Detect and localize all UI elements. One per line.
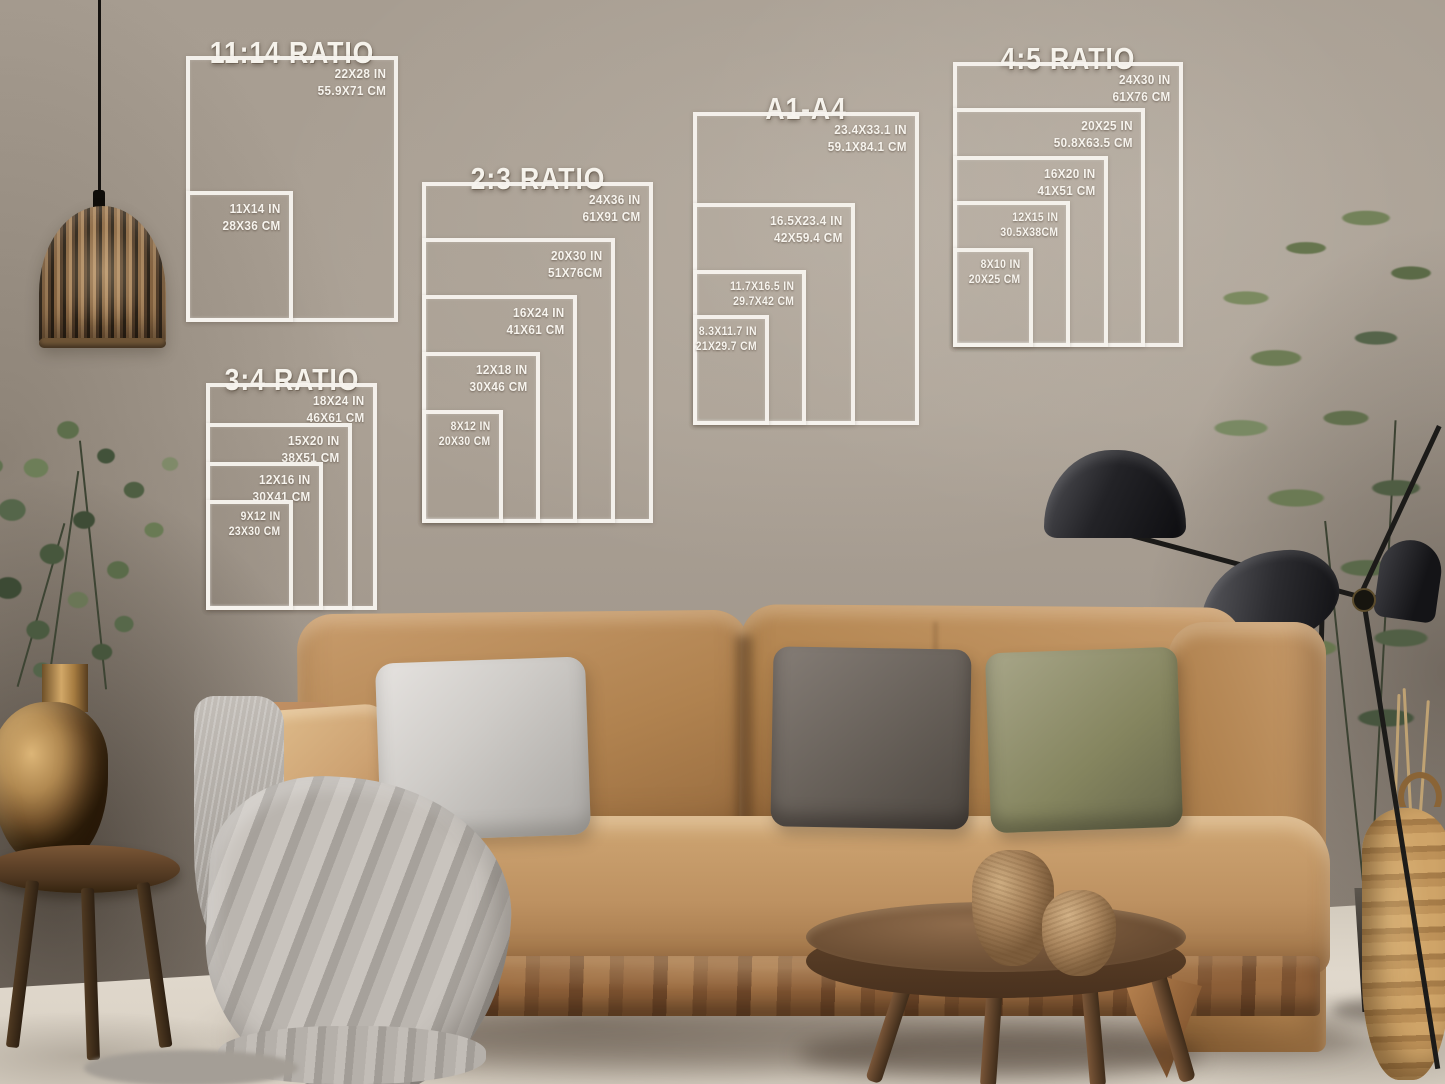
- size-inches: 22X28 IN: [317, 66, 386, 83]
- pillow-olive-green: [985, 647, 1183, 834]
- size-cm: 42X59.4 CM: [770, 230, 843, 247]
- size-inches: 16X24 IN: [507, 305, 565, 322]
- size-label: 23.4X33.1 IN 59.1X84.1 CM: [828, 122, 907, 155]
- size-inches: 8X10 IN: [969, 258, 1021, 273]
- size-inches: 20X25 IN: [1054, 118, 1133, 135]
- size-box: 8X12 IN 20X30 CM: [422, 410, 503, 523]
- size-cm: 41X51 CM: [1038, 183, 1096, 200]
- size-cm: 51X76CM: [548, 265, 603, 282]
- size-cm: 61X91 CM: [583, 209, 641, 226]
- size-label: 24X30 IN 61X76 CM: [1113, 72, 1171, 105]
- size-label: 8.3X11.7 IN 21X29.7 CM: [696, 325, 757, 354]
- pendant-lamp-cord: [98, 0, 101, 212]
- size-cm: 23X30 CM: [229, 525, 281, 540]
- size-inches: 12X16 IN: [253, 472, 311, 489]
- size-inches: 12X18 IN: [470, 362, 528, 379]
- size-label: 12X18 IN 30X46 CM: [470, 362, 528, 395]
- size-inches: 18X24 IN: [307, 393, 365, 410]
- size-cm: 30.5X38CM: [1000, 226, 1058, 241]
- size-inches: 8.3X11.7 IN: [696, 325, 757, 340]
- size-inches: 11.7X16.5 IN: [730, 280, 794, 295]
- size-inches: 12X15 IN: [1000, 211, 1058, 226]
- floor-lamp-pivot: [1352, 588, 1376, 612]
- size-inches: 23.4X33.1 IN: [828, 122, 907, 139]
- size-box: 8.3X11.7 IN 21X29.7 CM: [693, 315, 769, 425]
- size-label: 22X28 IN 55.9X71 CM: [317, 66, 386, 99]
- size-label: 16.5X23.4 IN 42X59.4 CM: [770, 213, 843, 246]
- size-label: 16X24 IN 41X61 CM: [507, 305, 565, 338]
- ceramic-vase-small: [1042, 890, 1116, 976]
- size-cm: 41X61 CM: [507, 322, 565, 339]
- size-inches: 24X36 IN: [583, 192, 641, 209]
- size-inches: 24X30 IN: [1113, 72, 1171, 89]
- size-inches: 16.5X23.4 IN: [770, 213, 843, 230]
- throw-blanket-pool: [84, 1050, 298, 1084]
- size-guide-a1-a4: A1-A4 23.4X33.1 IN 59.1X84.1 CM 16.5X23.…: [693, 112, 919, 425]
- size-cm: 30X46 CM: [470, 379, 528, 396]
- size-guide-2-3: 2:3 RATIO 24X36 IN 61X91 CM 20X30 IN 51X…: [422, 182, 653, 523]
- size-box: 9X12 IN 23X30 CM: [206, 500, 293, 610]
- size-label: 12X15 IN 30.5X38CM: [1000, 211, 1058, 240]
- size-cm: 20X25 CM: [969, 273, 1021, 288]
- size-guide-3-4: 3:4 RATIO 18X24 IN 46X61 CM 15X20 IN 38X…: [206, 383, 377, 610]
- size-guide-11-14: 11:14 RATIO 22X28 IN 55.9X71 CM 11X14 IN…: [186, 56, 398, 322]
- size-cm: 55.9X71 CM: [317, 83, 386, 100]
- size-label: 20X25 IN 50.8X63.5 CM: [1054, 118, 1133, 151]
- sofa-cushion-gap: [736, 636, 752, 836]
- eucalyptus-plant: [0, 402, 202, 702]
- size-label: 9X12 IN 23X30 CM: [229, 510, 281, 539]
- living-room-print-size-mockup: 11:14 RATIO 22X28 IN 55.9X71 CM 11X14 IN…: [0, 0, 1445, 1084]
- brass-vase: [0, 702, 108, 864]
- size-label: 8X12 IN 20X30 CM: [439, 420, 491, 449]
- size-cm: 21X29.7 CM: [696, 340, 757, 355]
- size-cm: 28X36 CM: [223, 218, 281, 235]
- size-cm: 59.1X84.1 CM: [828, 139, 907, 156]
- size-inches: 20X30 IN: [548, 248, 603, 265]
- size-label: 18X24 IN 46X61 CM: [307, 393, 365, 426]
- pillow-dark-gray: [770, 646, 971, 829]
- size-inches: 16X20 IN: [1038, 166, 1096, 183]
- ceramic-vase-large: [972, 850, 1054, 966]
- size-label: 8X10 IN 20X25 CM: [969, 258, 1021, 287]
- pendant-lamp-rim: [39, 338, 166, 348]
- size-cm: 50.8X63.5 CM: [1054, 135, 1133, 152]
- size-label: 20X30 IN 51X76CM: [548, 248, 603, 281]
- size-box: 8X10 IN 20X25 CM: [953, 248, 1033, 347]
- size-label: 11.7X16.5 IN 29.7X42 CM: [730, 280, 794, 309]
- size-cm: 61X76 CM: [1113, 89, 1171, 106]
- size-inches: 8X12 IN: [439, 420, 491, 435]
- size-cm: 29.7X42 CM: [730, 295, 794, 310]
- size-guide-4-5: 4:5 RATIO 24X30 IN 61X76 CM 20X25 IN 50.…: [953, 62, 1183, 347]
- size-label: 11X14 IN 28X36 CM: [223, 201, 281, 234]
- size-cm: 20X30 CM: [439, 435, 491, 450]
- size-label: 24X36 IN 61X91 CM: [583, 192, 641, 225]
- coffee-table-shadow: [798, 1030, 1202, 1078]
- size-inches: 11X14 IN: [223, 201, 281, 218]
- size-label: 16X20 IN 41X51 CM: [1038, 166, 1096, 199]
- size-inches: 9X12 IN: [229, 510, 281, 525]
- size-box: 11X14 IN 28X36 CM: [186, 191, 293, 322]
- size-inches: 15X20 IN: [282, 433, 340, 450]
